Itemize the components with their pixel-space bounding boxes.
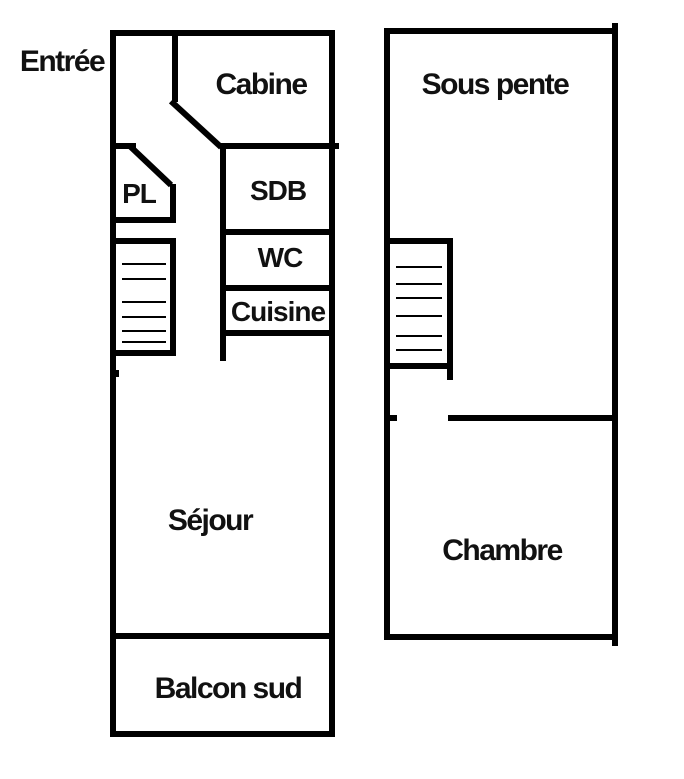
wall-sdb-bottom [220,229,335,235]
wall-corridor-diagonal [169,99,223,149]
wall-sdb-top [220,143,339,149]
room-label-sdb: SDB [250,177,306,205]
stair-tread [122,301,166,303]
wall-stair2-bottom [387,363,449,369]
stair-tread [122,330,166,332]
room-label-sejour: Séjour [168,506,252,536]
wall-stair1-top [110,238,176,244]
stair-tread [122,278,166,280]
wall-right-plan-corner-bump [612,23,618,28]
wall-balcon-bottom [110,731,335,737]
stair-tread [396,315,442,317]
wall-jamb-stub [110,370,119,377]
stair-tread [122,341,166,343]
room-label-entree: Entrée [20,47,104,77]
wall-wc-bottom [220,285,335,291]
wall-left-plan-top [110,30,335,36]
stair-tread [122,263,166,265]
wall-right-plan-right [612,28,618,646]
room-label-cabine: Cabine [215,70,306,100]
wall-stair2-right [447,243,453,380]
wall-stair2-top [388,238,453,244]
wall-sejour-balcon-divider [110,633,335,639]
room-label-sous-pente: Sous pente [422,70,569,100]
stair-tread [396,266,442,268]
stair-tread [396,283,442,285]
wall-right-plan-bottom [384,634,618,640]
wall-stair1-right [170,238,176,356]
wall-corridor-vertical [172,30,178,102]
wall-left-plan-right [329,30,335,737]
wall-stair1-bottom [110,350,176,356]
stair-tread [396,335,442,337]
room-label-pl: PL [122,180,156,208]
wall-chambre-partition [448,415,618,421]
wall-right-plan-left [384,28,390,640]
wall-left-plan-left [110,30,116,737]
room-label-cuisine: Cuisine [231,298,325,326]
wall-pl-bottom [110,217,176,223]
room-label-wc: WC [258,244,303,272]
stair-tread [396,349,442,351]
stair-tread [396,297,442,299]
wall-cuisine-bottom [223,330,335,336]
wall-inner-vertical [220,143,226,361]
wall-chambre-stub [384,415,397,421]
wall-right-plan-top [384,28,618,34]
stair-tread [122,316,166,318]
floorplan-canvas: Entrée Cabine PL SDB WC Cuisine Séjour B… [0,0,684,779]
room-label-balcon-sud: Balcon sud [155,674,302,704]
room-label-chambre: Chambre [442,536,562,566]
